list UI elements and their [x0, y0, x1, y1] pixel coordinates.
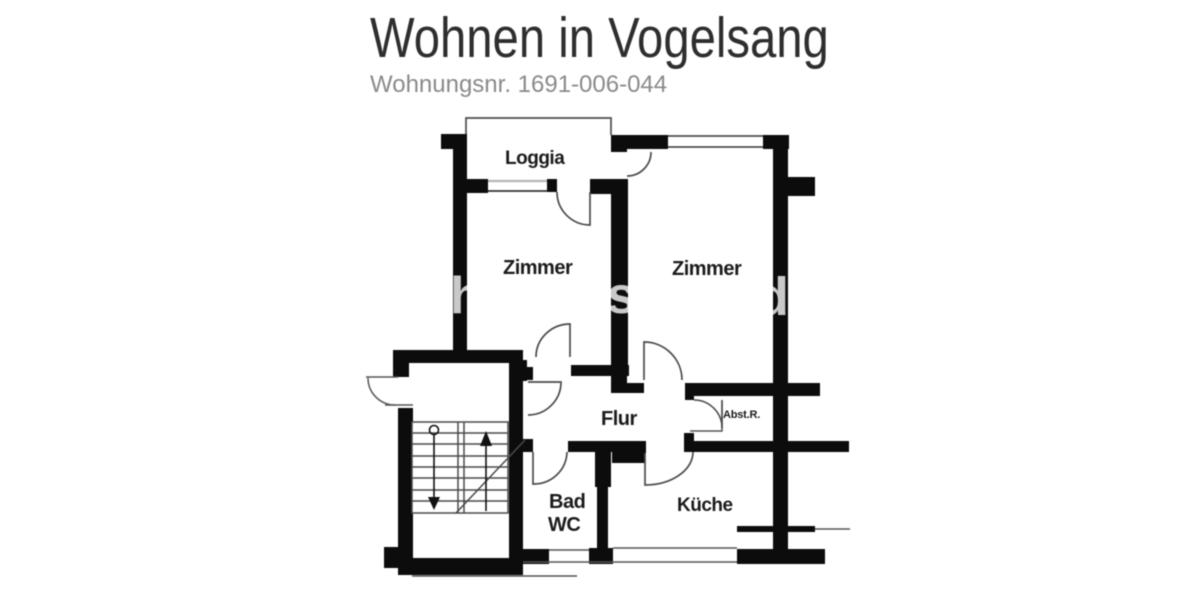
svg-text:Zimmer: Zimmer [503, 257, 573, 279]
svg-text:Küche: Küche [677, 495, 733, 516]
svg-text:Abst.R.: Abst.R. [723, 409, 760, 421]
svg-text:s: s [607, 267, 636, 325]
svg-text:d: d [756, 267, 789, 327]
svg-text:Zimmer: Zimmer [672, 258, 742, 280]
svg-text:Bad: Bad [549, 491, 585, 513]
svg-text:Wohnungsnr. 1691-006-044: Wohnungsnr. 1691-006-044 [370, 71, 667, 98]
svg-text:Wohnen in Vogelsang: Wohnen in Vogelsang [370, 7, 829, 70]
svg-text:Flur: Flur [601, 408, 637, 430]
svg-text:h: h [450, 267, 482, 325]
svg-text:WC: WC [548, 514, 580, 536]
svg-text:Loggia: Loggia [505, 148, 565, 169]
